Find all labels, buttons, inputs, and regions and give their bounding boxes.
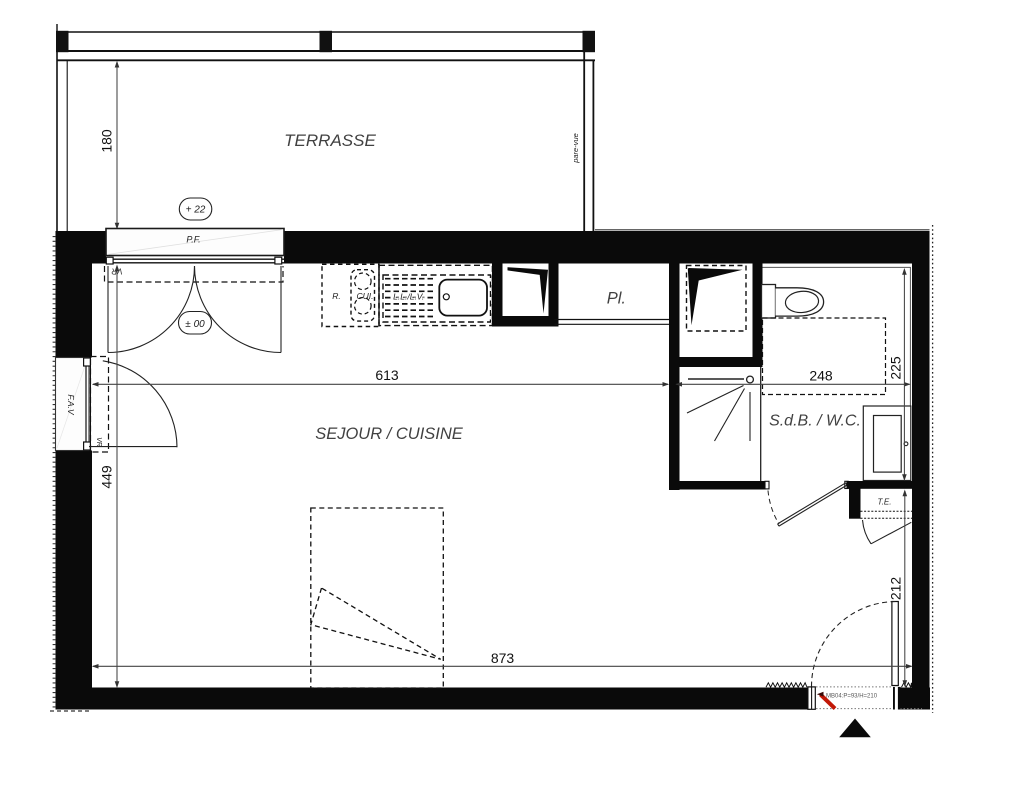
svg-text:212: 212	[888, 577, 904, 601]
svg-text:180: 180	[99, 129, 115, 153]
svg-text:613: 613	[375, 367, 399, 383]
svg-text:873: 873	[491, 650, 515, 666]
svg-text:Pl.: Pl.	[607, 290, 626, 308]
svg-text:R.: R.	[332, 291, 341, 301]
svg-text:T.E.: T.E.	[878, 498, 892, 507]
svg-text:MB04:P=93/H=210: MB04:P=93/H=210	[826, 694, 878, 700]
svg-text:CUI.: CUI.	[357, 291, 374, 301]
svg-text:± 00: ± 00	[185, 319, 205, 330]
svg-text:L.L./L.V.: L.L./L.V.	[393, 292, 424, 302]
svg-text:F.A.V: F.A.V	[66, 394, 76, 415]
svg-text:S.d.B. / W.C.: S.d.B. / W.C.	[769, 413, 861, 430]
svg-text:VR: VR	[95, 437, 102, 447]
svg-text:449: 449	[99, 465, 115, 489]
svg-text:TERRASSE: TERRASSE	[284, 131, 376, 150]
svg-text:+ 22: + 22	[186, 205, 206, 216]
svg-text:248: 248	[809, 367, 833, 383]
svg-text:P.F.: P.F.	[186, 235, 200, 245]
svg-text:SEJOUR / CUISINE: SEJOUR / CUISINE	[315, 425, 464, 443]
svg-text:225: 225	[888, 356, 904, 380]
svg-text:pare-vue: pare-vue	[571, 133, 580, 164]
